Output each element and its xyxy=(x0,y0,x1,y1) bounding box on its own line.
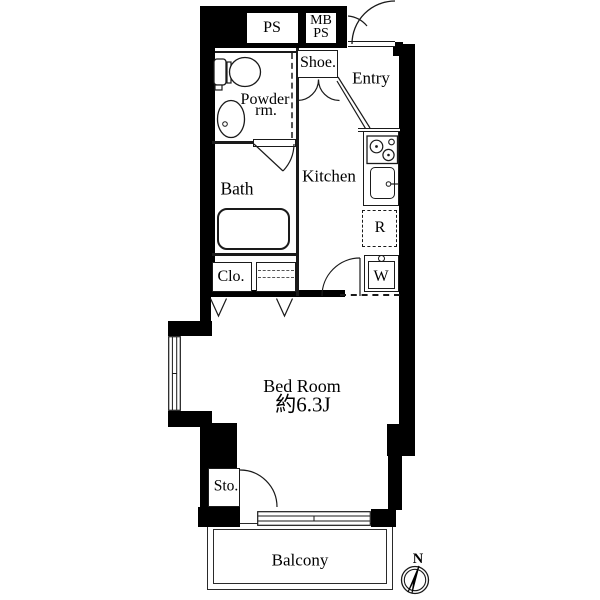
kitchen-faucet-icon xyxy=(384,178,400,190)
compass-north-label: N xyxy=(413,551,424,567)
shelf-dashed-line-2 xyxy=(258,277,294,278)
label-entry: Entry xyxy=(352,70,390,87)
wall-bay-top xyxy=(168,321,212,336)
label-shoe: Shoe. xyxy=(300,55,336,71)
label-bedroom-size: 約6.3J xyxy=(275,395,330,416)
powder-top-line xyxy=(215,51,296,53)
balcony-window-icon xyxy=(257,511,371,526)
folding-door-mark-left xyxy=(210,298,227,317)
label-bath: Bath xyxy=(220,180,253,198)
bedroom-door-arc-icon xyxy=(322,256,362,298)
wall-powder-bath xyxy=(212,141,254,144)
label-closet: Clo. xyxy=(217,269,244,285)
wall-right-lower xyxy=(388,456,402,510)
shoe-double-door-arc-icon xyxy=(297,79,340,102)
bathtub-icon xyxy=(217,208,290,250)
label-refrigerator: R xyxy=(375,220,386,236)
toilet-icon xyxy=(212,55,262,91)
wall-bottom-right-block xyxy=(371,509,396,527)
wall-bottom-left-block xyxy=(198,507,240,527)
label-powder-line2: rm. xyxy=(255,103,277,119)
washer-tap-icon xyxy=(378,255,385,262)
bath-door-arc-icon xyxy=(253,143,297,176)
wall-bedroom-left-block xyxy=(200,423,237,470)
label-mb-ps: PS xyxy=(313,27,329,41)
storage-door-arc-icon xyxy=(240,469,278,508)
label-storage: Sto. xyxy=(214,478,239,494)
entry-door-arc-icon xyxy=(345,0,411,47)
floor-plan: N PS MB PS Shoe. Entry Powder rm. Kitche… xyxy=(0,0,600,600)
compass-icon: N xyxy=(396,548,438,598)
shelf-dashed-line-1 xyxy=(258,270,294,271)
powder-dashed-partition xyxy=(291,53,293,138)
label-balcony: Balcony xyxy=(272,552,329,569)
kitchen-counter-top-line xyxy=(358,128,400,132)
wall-bath-bottom xyxy=(212,253,299,256)
label-washer: W xyxy=(373,269,388,285)
wall-storage-strip xyxy=(200,468,208,509)
label-kitchen: Kitchen xyxy=(302,168,356,185)
label-ps: PS xyxy=(263,20,281,36)
folding-door-mark-right xyxy=(276,298,293,317)
stove-icon xyxy=(366,135,399,165)
wall-right-step xyxy=(387,424,415,456)
bedroom-window-icon xyxy=(168,336,181,411)
wall-right xyxy=(399,44,415,424)
